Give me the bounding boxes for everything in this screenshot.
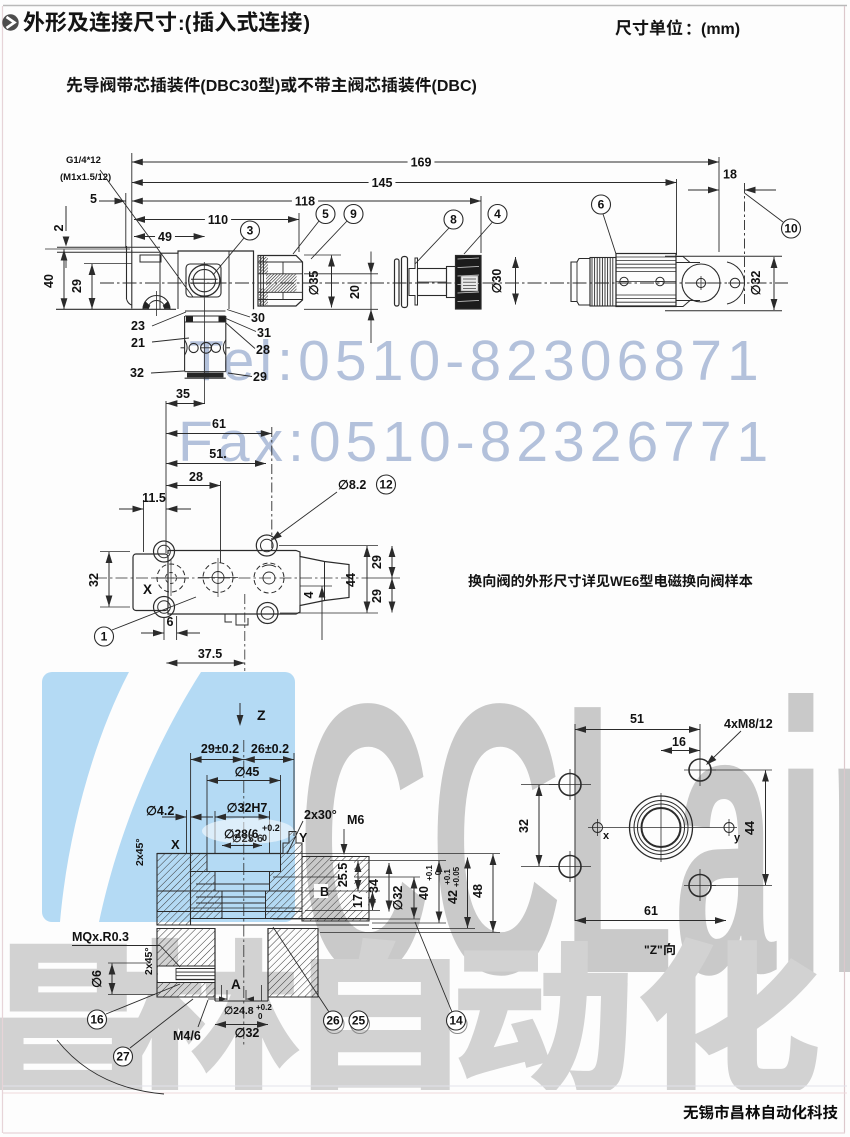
svg-text:37.5: 37.5 [198,647,222,661]
svg-text:∅6: ∅6 [90,970,104,988]
svg-text:10: 10 [784,222,798,236]
svg-text:+0.05: +0.05 [452,866,461,887]
svg-text:：(mm): ：(mm) [685,21,740,38]
svg-text:29: 29 [370,589,384,603]
svg-text:4xM8/12: 4xM8/12 [724,717,773,731]
svg-text:48: 48 [471,884,485,898]
svg-text:51.: 51. [209,447,226,461]
svg-text:M6: M6 [347,813,364,827]
svg-text:44: 44 [344,573,358,587]
svg-text:44: 44 [743,821,757,835]
svg-text:4: 4 [494,207,501,221]
svg-text:∅23.6: ∅23.6 [232,833,263,845]
svg-text:"Z": "Z" [644,943,663,957]
svg-text:40: 40 [42,274,56,288]
svg-text:(M1x1.5/12): (M1x1.5/12) [60,172,111,183]
svg-text:29: 29 [253,370,267,384]
svg-text:32: 32 [517,819,531,833]
svg-text:∅32: ∅32 [391,886,405,911]
svg-text:x: x [603,830,610,842]
svg-text:27: 27 [116,1050,130,1064]
svg-text:+0.1: +0.1 [425,865,434,881]
svg-text:Fax:0510-82326771: Fax:0510-82326771 [178,410,773,474]
svg-text:21: 21 [131,336,145,350]
svg-text:110: 110 [208,213,228,227]
svg-text:A: A [231,977,241,992]
svg-text:MQx.R0.3: MQx.R0.3 [72,930,129,944]
svg-text:∅32: ∅32 [749,271,763,296]
svg-text:∅4.2: ∅4.2 [146,804,174,818]
svg-text:5: 5 [90,192,97,206]
svg-text:Tel:0510-82306871: Tel:0510-82306871 [189,329,764,393]
svg-text:4: 4 [302,591,316,598]
svg-text:(DBC): (DBC) [432,78,477,95]
svg-text:49: 49 [158,230,172,244]
svg-text:32: 32 [130,366,144,380]
svg-text:∅30: ∅30 [490,269,504,294]
svg-text:+0.2: +0.2 [256,1003,272,1012]
svg-text:26: 26 [326,1014,340,1028]
svg-text:): ) [275,78,280,95]
svg-text:X: X [171,837,180,852]
svg-text:): ) [303,13,310,35]
svg-text:29±0.2: 29±0.2 [201,742,239,756]
svg-text:6: 6 [167,615,174,629]
svg-text:28: 28 [189,470,203,484]
svg-text:8: 8 [450,213,457,227]
svg-text:17: 17 [351,894,365,908]
svg-text:2x30°: 2x30° [304,808,337,822]
svg-text:∅32: ∅32 [235,1026,260,1040]
svg-text:18: 18 [723,168,737,182]
svg-text:9: 9 [350,207,357,221]
svg-text:25: 25 [352,1014,366,1028]
svg-text:14: 14 [449,1014,463,1028]
svg-text:∅24.8: ∅24.8 [224,1005,254,1017]
svg-text:28: 28 [256,343,270,357]
svg-text:1: 1 [101,630,108,644]
svg-text:12: 12 [379,478,393,492]
svg-text:3: 3 [247,224,254,238]
svg-text:31: 31 [257,326,271,340]
svg-text:2x45°: 2x45° [143,947,155,975]
svg-text:∅35: ∅35 [307,271,321,296]
svg-text:32: 32 [87,573,101,587]
svg-text:∅45: ∅45 [235,765,260,779]
svg-text:Z: Z [257,707,266,723]
svg-text:∅32H7: ∅32H7 [227,801,268,815]
svg-text:118: 118 [295,195,315,209]
svg-text:5: 5 [322,207,329,221]
svg-text:61: 61 [212,417,226,431]
svg-text:X: X [143,582,152,597]
svg-text:+0.1: +0.1 [443,869,452,885]
svg-text:35: 35 [176,387,190,401]
svg-text:169: 169 [411,156,432,170]
svg-text:29: 29 [70,279,84,293]
svg-text:∅8.2: ∅8.2 [338,478,366,492]
svg-text:+0.2: +0.2 [262,823,280,833]
svg-text::(: :( [178,13,192,35]
svg-text:2x45°: 2x45° [134,838,146,866]
svg-text:G1/4*12: G1/4*12 [66,155,101,166]
svg-text:y: y [734,832,741,844]
svg-text:40: 40 [417,886,431,900]
svg-text:6: 6 [598,198,605,212]
svg-text:20: 20 [348,285,362,299]
svg-text:61: 61 [644,904,658,918]
svg-text:30: 30 [251,311,265,325]
svg-text:34: 34 [367,879,381,893]
svg-text:M4/6: M4/6 [173,1029,201,1043]
svg-text:145: 145 [372,176,393,190]
svg-text:51: 51 [630,712,644,726]
svg-text:11.5: 11.5 [142,491,166,505]
svg-text:0: 0 [258,1012,263,1021]
svg-text:WE6: WE6 [610,574,640,589]
svg-text:26±0.2: 26±0.2 [251,742,289,756]
svg-text:0: 0 [434,870,443,875]
svg-text:25.5: 25.5 [336,863,350,887]
svg-text:2: 2 [52,224,66,231]
svg-text:(DBC30: (DBC30 [200,78,258,95]
svg-text:B: B [320,885,329,899]
svg-text:16: 16 [672,735,686,749]
svg-text:29: 29 [370,555,384,569]
svg-text:23: 23 [131,319,145,333]
svg-text:16: 16 [90,1013,104,1027]
svg-text:42: 42 [446,890,460,904]
